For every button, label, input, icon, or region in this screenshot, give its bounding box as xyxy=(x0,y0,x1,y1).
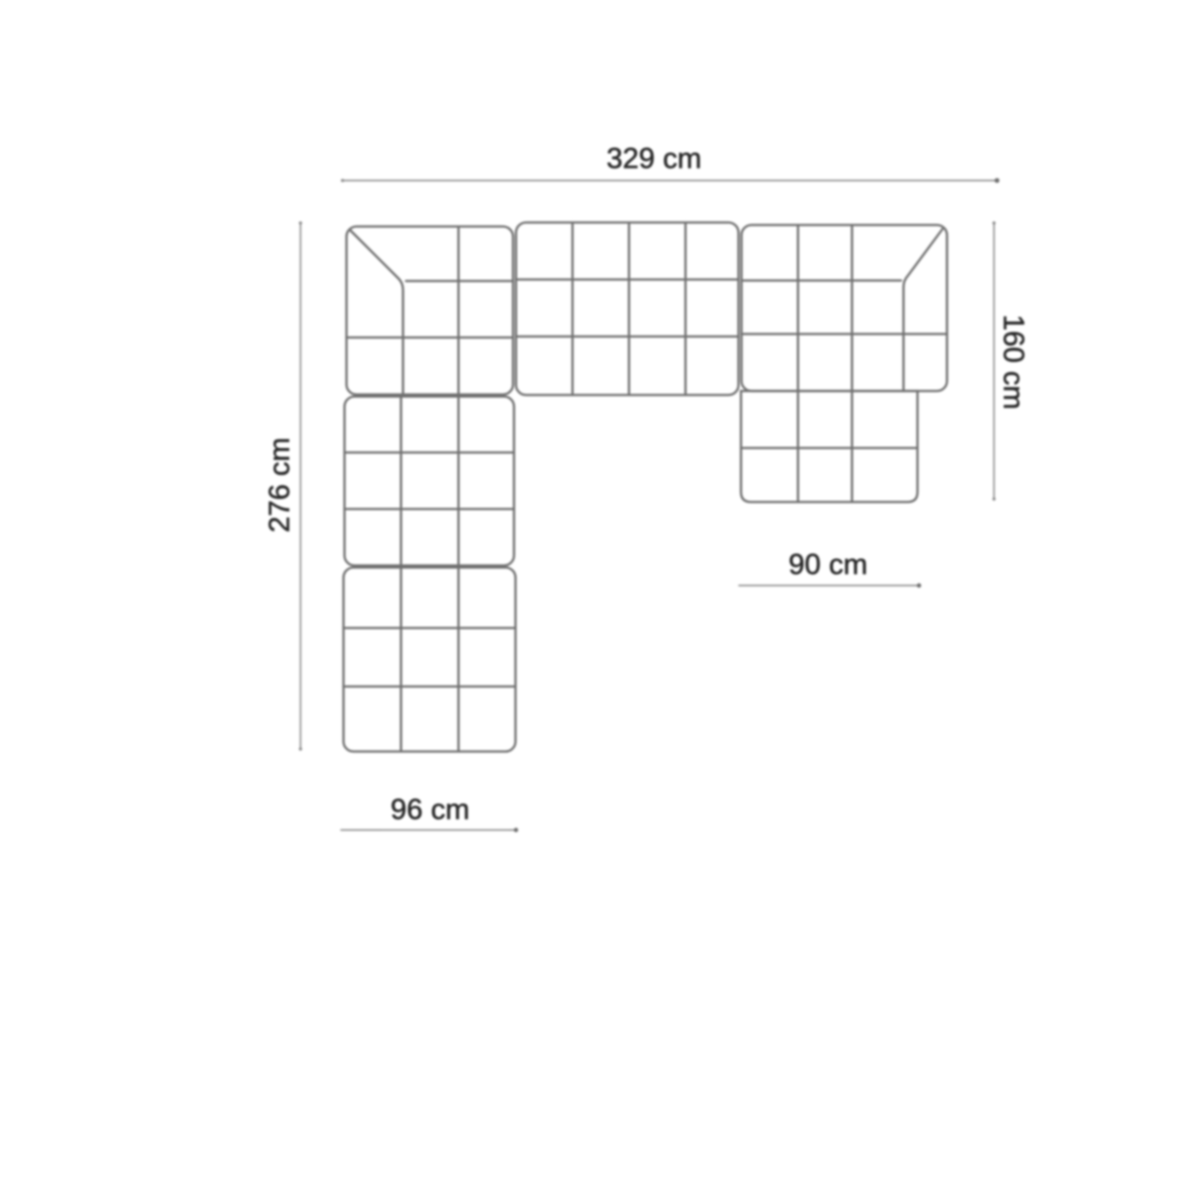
svg-text:96 cm: 96 cm xyxy=(391,794,470,826)
svg-text:276 cm: 276 cm xyxy=(264,437,296,532)
svg-text:160 cm: 160 cm xyxy=(997,314,1029,409)
svg-text:90 cm: 90 cm xyxy=(789,549,868,581)
svg-text:329 cm: 329 cm xyxy=(606,143,701,175)
